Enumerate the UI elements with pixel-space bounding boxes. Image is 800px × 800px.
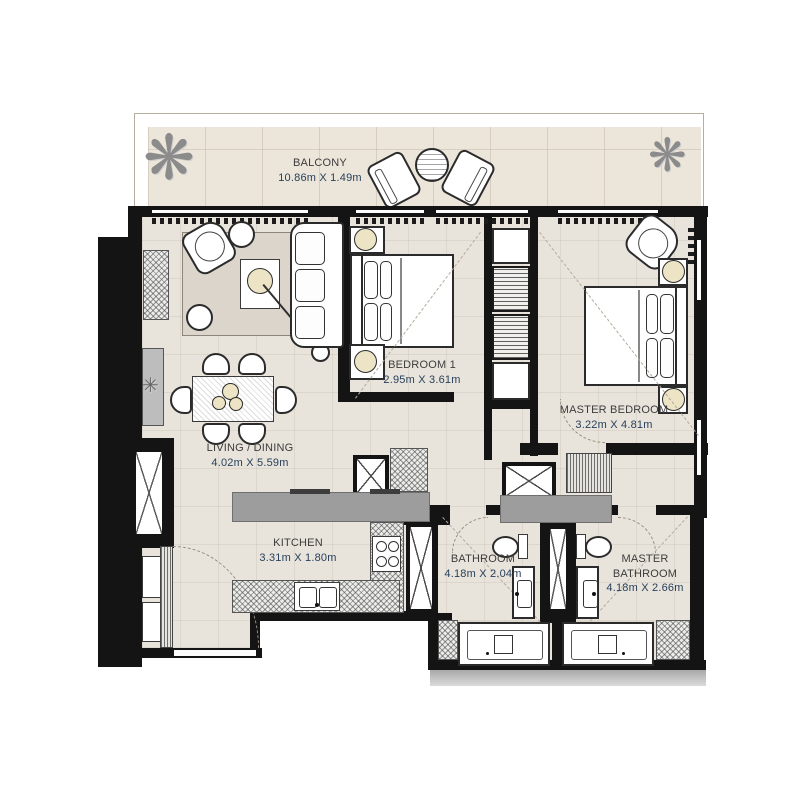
window [697, 240, 701, 300]
drop-shadow [430, 670, 706, 686]
kitchen-sink [294, 582, 340, 611]
room-label-kitchen: KITCHEN 3.31m X 1.80m [228, 536, 368, 565]
shaft-c [406, 523, 436, 613]
window [356, 210, 424, 213]
wall-wardrobe-cap [484, 400, 538, 409]
master-bathroom-name: MASTER BATHROOM [598, 552, 692, 581]
plant-icon: ❋ [648, 132, 687, 178]
bath-hatch [656, 620, 690, 660]
master-bathroom-dims: 4.18m X 2.66m [606, 581, 683, 596]
side-table [228, 221, 255, 248]
room-label-living-dining: LIVING / DINING 4.02m X 5.59m [180, 441, 320, 470]
shaft-left [134, 450, 164, 536]
curtain-hatch [152, 218, 308, 224]
master-bedroom-dims: 3.22m X 4.81m [575, 418, 652, 433]
curtain-hatch [436, 218, 528, 224]
entry-door-opening [174, 650, 256, 656]
wall-bath-top-right [656, 505, 694, 515]
wardrobe [492, 362, 530, 400]
balcony-table [415, 148, 449, 182]
bath-hatch [438, 620, 458, 660]
side-table [186, 304, 213, 331]
utility-hatch [566, 453, 612, 493]
wall-master-bottom-b [606, 443, 708, 455]
window [697, 420, 701, 475]
window [152, 210, 308, 213]
kitchen-dims: 3.31m X 1.80m [259, 551, 336, 566]
dining-chair [202, 353, 230, 375]
entry-door-leaf [160, 546, 173, 648]
wardrobe-drawers [492, 314, 530, 360]
window [436, 210, 528, 213]
wall-wardrobe-left [484, 206, 492, 460]
hall-counter [500, 495, 612, 523]
room-label-balcony: BALCONY 10.86m X 1.49m [250, 156, 390, 185]
curtain-hatch [688, 224, 694, 264]
curtain-hatch [356, 218, 424, 224]
wardrobe [492, 228, 530, 264]
bath-shaft [548, 527, 568, 611]
bathroom-dims: 4.18m X 2.04m [444, 567, 521, 582]
nightstand-lamp [662, 260, 685, 283]
plant-icon: ❋ [143, 128, 195, 190]
centerpiece [212, 396, 226, 410]
counter-handle [290, 489, 330, 494]
vanity [576, 566, 599, 619]
bathroom-name: BATHROOM [451, 552, 515, 567]
wall-right-lower [690, 512, 704, 670]
room-label-bedroom1: BEDROOM 1 2.95m X 3.61m [352, 358, 492, 387]
room-label-master-bedroom: MASTER BEDROOM 3.22m X 4.81m [540, 403, 688, 432]
master-bedroom-name: MASTER BEDROOM [560, 403, 669, 418]
wall-master-bottom-a [520, 443, 558, 455]
bedroom1-name: BEDROOM 1 [388, 358, 456, 373]
balcony-dims: 10.86m X 1.49m [278, 171, 362, 186]
room-label-bathroom: BATHROOM 4.18m X 2.04m [434, 552, 532, 581]
nightstand-lamp [354, 228, 377, 251]
bedroom1-dims: 2.95m X 3.61m [383, 373, 460, 388]
balcony-name: BALCONY [293, 156, 347, 171]
small-plant-icon: ✳ [142, 376, 159, 396]
window [558, 210, 658, 213]
wardrobe-drawers [492, 266, 530, 312]
living-dining-dims: 4.02m X 5.59m [211, 456, 288, 471]
hall-hatch [390, 448, 428, 492]
bathtub [562, 622, 654, 666]
media-console [143, 250, 169, 320]
floor-plan: ❋ ❋ [0, 0, 800, 800]
room-label-master-bathroom: MASTER BATHROOM 4.18m X 2.66m [598, 552, 692, 596]
dining-chair [170, 386, 192, 414]
centerpiece [229, 397, 243, 411]
living-dining-name: LIVING / DINING [207, 441, 294, 456]
sofa [290, 222, 344, 348]
stove [372, 536, 401, 572]
kitchen-counter [232, 492, 430, 522]
kitchen-name: KITCHEN [273, 536, 323, 551]
dining-chair [238, 353, 266, 375]
wall-wardrobe-right [530, 206, 538, 456]
bathtub [458, 622, 550, 666]
counter-handle [370, 489, 400, 494]
master-bed [584, 286, 688, 386]
